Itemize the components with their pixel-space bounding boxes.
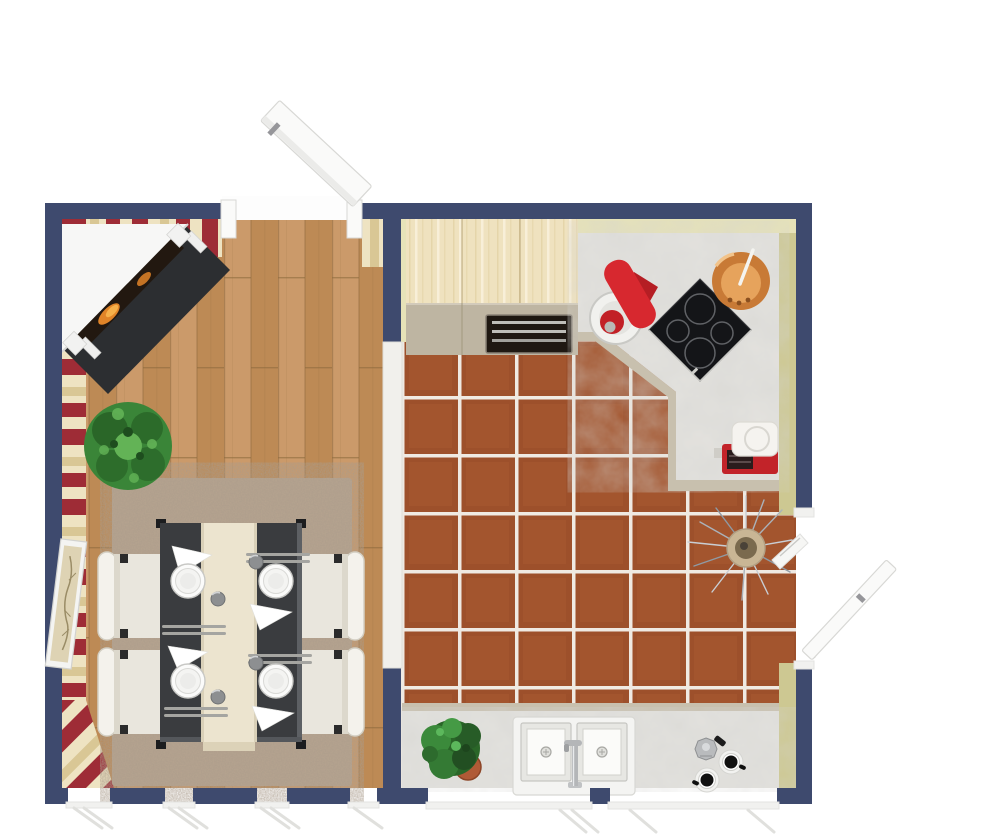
chair-left-top xyxy=(98,552,168,640)
divider-wall-lower xyxy=(383,668,401,788)
kitchen-right-wall-face-lower xyxy=(779,663,796,788)
room-opening-threshold xyxy=(383,342,402,668)
chair-left-bottom xyxy=(98,648,168,736)
chair-right-top xyxy=(294,552,364,640)
bottom-wall-window-mullion xyxy=(590,788,610,804)
bottom-wall-segment xyxy=(45,788,68,804)
bottom-wall-segment xyxy=(110,788,165,804)
kitchen-right-wall-face-upper xyxy=(779,233,796,515)
floorplan-canvas xyxy=(0,0,1000,836)
door-jamb-left xyxy=(221,200,236,238)
bottom-wall-segment xyxy=(287,788,350,804)
dining-table xyxy=(156,519,312,751)
dining-potted-plant xyxy=(84,402,172,490)
top-wall-left-of-door xyxy=(45,203,222,219)
right-wall-lower xyxy=(796,663,812,804)
cabinet-top xyxy=(406,219,578,303)
left-wall xyxy=(45,203,62,804)
top-wall-right-of-door xyxy=(362,203,812,219)
wallpaper-top-right-band xyxy=(362,219,383,267)
top-door-opening xyxy=(222,196,362,220)
kitchen-cabinet-block xyxy=(406,219,578,355)
bottom-wall-segment xyxy=(193,788,257,804)
divider-kitchen-face xyxy=(401,233,406,342)
bottom-counter xyxy=(402,703,779,795)
right-wall-upper xyxy=(796,203,812,515)
bottom-wall-segment xyxy=(377,788,428,804)
double-sink xyxy=(513,717,635,795)
bottom-wall-segment xyxy=(777,788,812,804)
door-jamb-right xyxy=(347,200,362,238)
divider-wall-upper xyxy=(383,203,401,342)
runner-overhang xyxy=(203,742,255,751)
bottom-counter-edge xyxy=(402,703,779,711)
built-in-oven xyxy=(486,315,572,353)
floorplan-render xyxy=(0,0,1000,836)
